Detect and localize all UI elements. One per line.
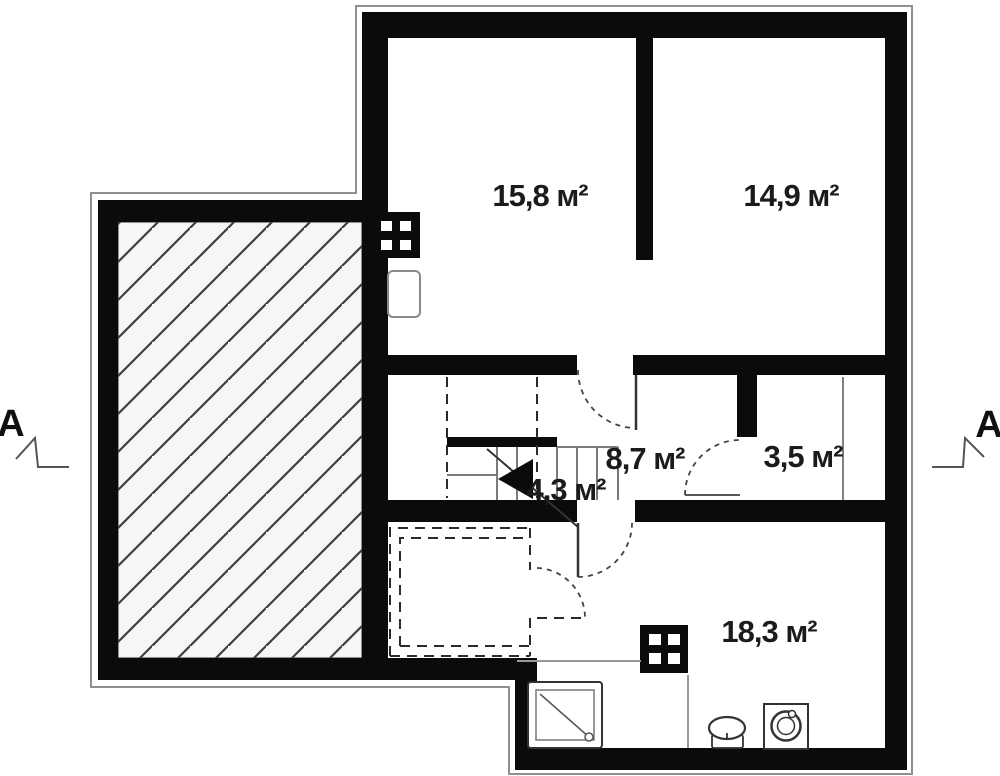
section-marker-right: A: [932, 404, 1000, 467]
wall-closet-stub: [737, 375, 757, 437]
floor-plan: 15,8 м² 14,9 м² 8,7 м² 3,5 м² 4,3 м² 18,…: [0, 0, 1000, 776]
section-marker-left-label: A: [0, 403, 25, 445]
room-area-label-closet: 3,5 м²: [764, 439, 844, 474]
wall-hall-top-right: [633, 355, 885, 375]
washing-machine-icon: [764, 704, 808, 749]
room-area-label-lower-room: 18,3 м²: [721, 614, 817, 649]
terrace-hatched-area: [118, 222, 362, 658]
chimney-upper-icon: [372, 212, 420, 258]
room-area-label-bedroom-2: 14,9 м²: [743, 178, 839, 213]
wall-terrace-left: [98, 200, 118, 680]
wall-hall-bottom-right: [635, 500, 885, 522]
toilet-icon: [709, 717, 745, 748]
wall-left: [362, 12, 388, 680]
section-marker-right-label: A: [975, 404, 1000, 446]
room-area-label-bedroom-1: 15,8 м²: [492, 178, 588, 213]
boiler-icon: [388, 271, 420, 317]
wall-hall-top-left: [388, 355, 577, 375]
room-labels: 15,8 м² 14,9 м² 8,7 м² 3,5 м² 4,3 м² 18,…: [492, 178, 843, 649]
door-bedroom-to-hall: [578, 370, 636, 430]
chimney-lower-icon: [640, 625, 688, 673]
room-area-label-stairs: 4,3 м²: [527, 472, 607, 507]
wall-bottom: [515, 748, 907, 770]
wall-bottom-left: [98, 658, 537, 680]
wall-top: [362, 12, 907, 38]
wall-right: [885, 12, 907, 770]
shower-tray-icon: [528, 682, 602, 748]
door-hall-to-closet: [685, 440, 740, 495]
wall-terrace-top: [98, 200, 362, 222]
wall-bedroom-partition: [636, 38, 653, 260]
door-hall-to-lower-room: [578, 523, 632, 577]
wall-stair-bar: [447, 437, 557, 447]
floor-plan-canvas: 15,8 м² 14,9 м² 8,7 м² 3,5 м² 4,3 м² 18,…: [0, 0, 1000, 776]
section-marker-left: A: [0, 403, 69, 467]
dashed-planned-partition: [390, 528, 585, 656]
room-area-label-hall: 8,7 м²: [606, 441, 686, 476]
